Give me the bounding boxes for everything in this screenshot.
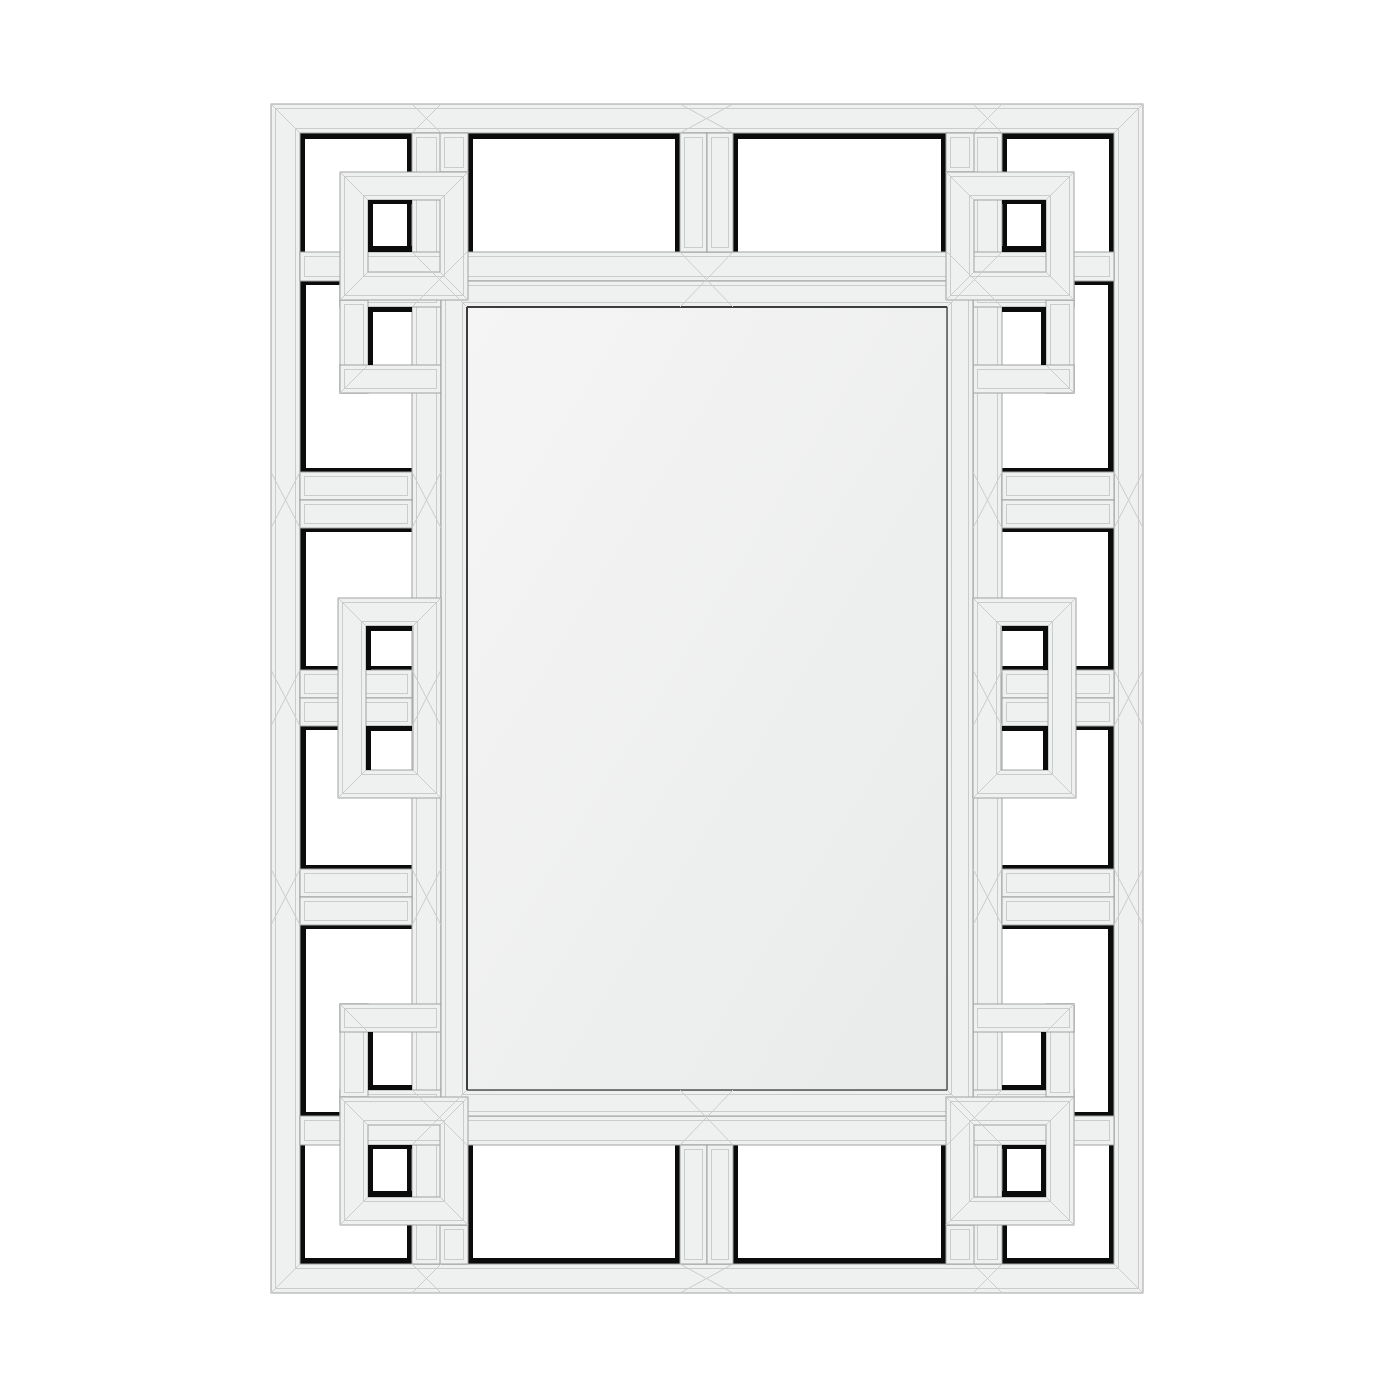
fretwork-mirror-graphic xyxy=(0,0,1400,1400)
mirror-glass xyxy=(467,307,947,1090)
product-image-stage xyxy=(0,0,1400,1400)
